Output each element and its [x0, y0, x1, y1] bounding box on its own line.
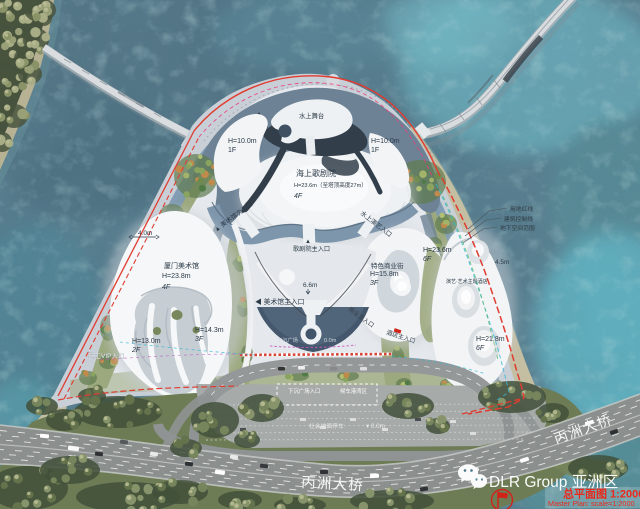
svg-text:H=15.8m: H=15.8m — [370, 271, 399, 278]
svg-text:▲: ▲ — [305, 239, 311, 245]
svg-text:4.0m: 4.0m — [138, 230, 152, 237]
svg-text:建筑控制线: 建筑控制线 — [504, 215, 533, 223]
svg-text:1F: 1F — [228, 147, 236, 154]
svg-text:0.0m: 0.0m — [324, 338, 337, 344]
svg-text:候车港湾区: 候车港湾区 — [340, 387, 368, 395]
svg-text:3F: 3F — [195, 336, 204, 343]
svg-text:下沉广场入口: 下沉广场入口 — [288, 387, 320, 395]
svg-text:H=13.0m: H=13.0m — [132, 338, 161, 345]
svg-text:6.6m: 6.6m — [303, 282, 317, 289]
svg-text:2F: 2F — [131, 347, 141, 354]
svg-text:H=10.0m: H=10.0m — [371, 138, 400, 145]
svg-text:▾ 0.0m: ▾ 0.0m — [366, 423, 385, 430]
svg-text:下沉广场: 下沉广场 — [277, 336, 298, 344]
svg-text:水上舞台: 水上舞台 — [299, 111, 324, 120]
svg-text:海上歌剧院: 海上歌剧院 — [296, 168, 336, 178]
svg-text:4.5m: 4.5m — [495, 259, 509, 266]
svg-text:3F: 3F — [370, 280, 379, 287]
svg-text:1F: 1F — [371, 147, 379, 154]
svg-text:Master Plan: scale=1:2000: Master Plan: scale=1:2000 — [548, 499, 635, 508]
svg-text:H=14.3m: H=14.3m — [195, 327, 224, 334]
svg-text:地下空间范围: 地下空间范围 — [500, 224, 535, 232]
svg-text:H=21.8m: H=21.8m — [476, 336, 505, 343]
svg-text:演艺·艺术主题酒店: 演艺·艺术主题酒店 — [446, 278, 488, 285]
svg-text:6F: 6F — [476, 345, 485, 352]
svg-text:4F: 4F — [294, 193, 303, 200]
svg-text:员工VIP入口: 员工VIP入口 — [88, 352, 124, 360]
svg-text:H=23.6m: H=23.6m — [423, 247, 452, 254]
svg-text:特色商业街: 特色商业街 — [371, 261, 404, 270]
svg-text:6F: 6F — [423, 256, 432, 263]
svg-text:H=23.6m（至塔顶高度27m）: H=23.6m（至塔顶高度27m） — [294, 181, 367, 189]
svg-text:丙洲大桥: 丙洲大桥 — [301, 474, 365, 494]
svg-text:社会地面停车: 社会地面停车 — [309, 422, 344, 430]
svg-text:4F: 4F — [162, 284, 171, 291]
svg-text:用地红线: 用地红线 — [510, 205, 533, 213]
svg-text:厦门美术馆: 厦门美术馆 — [164, 261, 199, 270]
svg-text:歌剧院主入口: 歌剧院主入口 — [293, 245, 330, 253]
svg-text:H=10.0m: H=10.0m — [228, 138, 257, 145]
svg-text:◀ 美术馆主入口: ◀ 美术馆主入口 — [255, 297, 304, 306]
svg-text:H=23.8m: H=23.8m — [162, 273, 191, 280]
